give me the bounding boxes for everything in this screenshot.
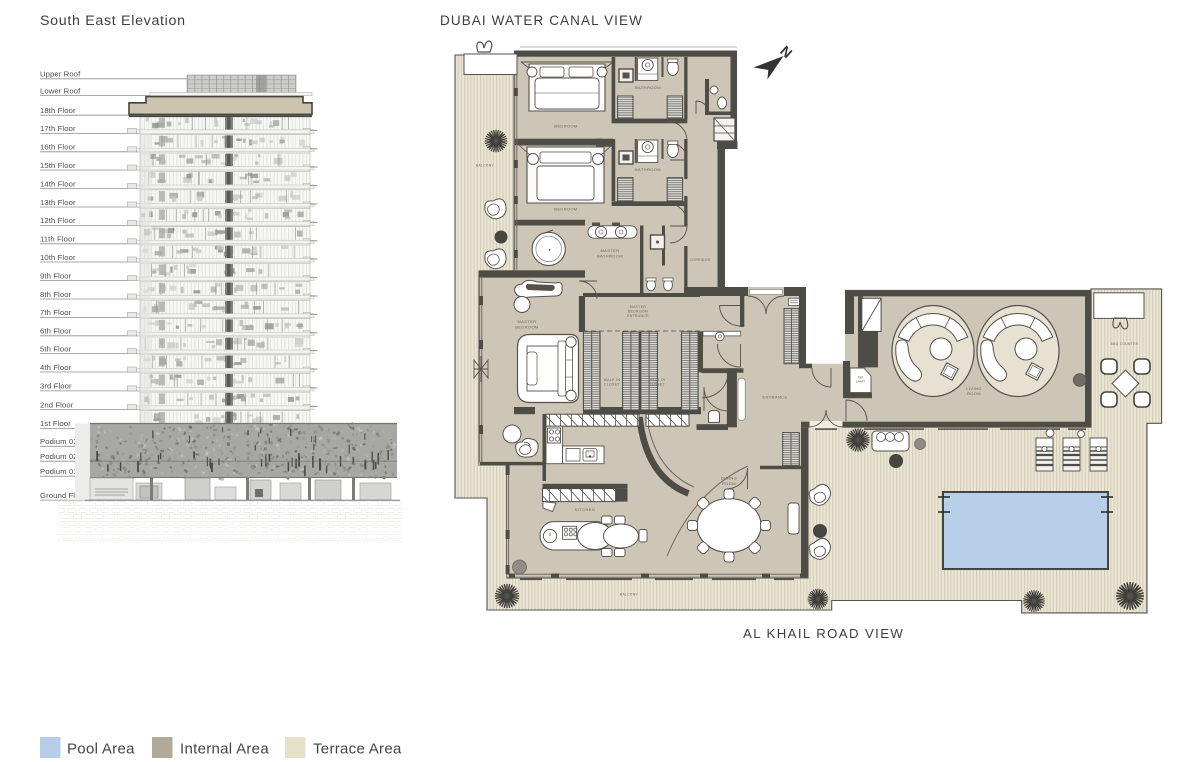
svg-text:CLOSET: CLOSET bbox=[604, 383, 620, 387]
svg-text:Podium 02: Podium 02 bbox=[40, 452, 78, 461]
svg-text:WALK IN: WALK IN bbox=[649, 378, 666, 382]
svg-text:Podium 01: Podium 01 bbox=[40, 467, 78, 476]
svg-text:BBQ COUNTER: BBQ COUNTER bbox=[1111, 342, 1139, 346]
svg-text:BALCONY: BALCONY bbox=[476, 164, 495, 168]
svg-text:7th Floor: 7th Floor bbox=[40, 308, 72, 317]
svg-text:CORRIDOR: CORRIDOR bbox=[690, 258, 711, 262]
svg-text:18th Floor: 18th Floor bbox=[40, 106, 76, 115]
svg-text:BATHROOM: BATHROOM bbox=[635, 167, 661, 172]
svg-text:BALCONY: BALCONY bbox=[620, 593, 639, 597]
svg-text:Terrace Area: Terrace Area bbox=[313, 741, 402, 758]
svg-text:Internal Area: Internal Area bbox=[180, 741, 269, 758]
svg-text:BEDROOM: BEDROOM bbox=[554, 124, 577, 129]
svg-text:2nd Floor: 2nd Floor bbox=[40, 400, 74, 409]
svg-text:11th Floor: 11th Floor bbox=[40, 235, 75, 244]
svg-text:ENTRANCE: ENTRANCE bbox=[627, 314, 649, 318]
svg-text:10th Floor: 10th Floor bbox=[40, 253, 76, 262]
svg-text:BATHROOM: BATHROOM bbox=[597, 254, 623, 259]
svg-text:South East Elevation: South East Elevation bbox=[40, 13, 186, 29]
svg-text:ROOM: ROOM bbox=[722, 481, 736, 486]
svg-text:Pool Area: Pool Area bbox=[67, 741, 135, 758]
svg-text:BEDROOM: BEDROOM bbox=[515, 325, 538, 330]
svg-text:ROOM: ROOM bbox=[967, 391, 981, 396]
svg-text:WALK IN: WALK IN bbox=[604, 378, 621, 382]
svg-text:Upper Roof: Upper Roof bbox=[40, 70, 81, 79]
svg-text:8th Floor: 8th Floor bbox=[40, 290, 72, 299]
svg-text:9th Floor: 9th Floor bbox=[40, 271, 72, 280]
svg-text:17th Floor: 17th Floor bbox=[40, 124, 76, 133]
svg-text:BATHROOM: BATHROOM bbox=[635, 85, 661, 90]
svg-text:14th Floor: 14th Floor bbox=[40, 179, 76, 188]
svg-text:4th Floor: 4th Floor bbox=[40, 363, 72, 372]
svg-text:SHAFT: SHAFT bbox=[856, 380, 865, 384]
svg-text:KITCHEN: KITCHEN bbox=[575, 507, 595, 512]
svg-text:6th Floor: 6th Floor bbox=[40, 327, 72, 336]
svg-text:MASTER: MASTER bbox=[600, 248, 619, 253]
svg-text:ENTRANCE: ENTRANCE bbox=[762, 395, 787, 400]
svg-text:MASTER: MASTER bbox=[630, 305, 647, 309]
svg-text:1st Floor: 1st Floor bbox=[40, 419, 71, 428]
svg-text:13th Floor: 13th Floor bbox=[40, 198, 76, 207]
svg-text:5th Floor: 5th Floor bbox=[40, 344, 72, 353]
svg-text:Lower Roof: Lower Roof bbox=[40, 86, 81, 95]
svg-text:AL KHAIL ROAD VIEW: AL KHAIL ROAD VIEW bbox=[743, 626, 904, 641]
svg-text:CLOSET: CLOSET bbox=[649, 383, 665, 387]
svg-text:BEDROOM: BEDROOM bbox=[554, 207, 577, 212]
svg-text:16th Floor: 16th Floor bbox=[40, 143, 76, 152]
svg-text:3rd Floor: 3rd Floor bbox=[40, 382, 72, 391]
svg-text:DINING: DINING bbox=[721, 476, 737, 481]
svg-text:MASTER: MASTER bbox=[517, 319, 536, 324]
svg-text:15th Floor: 15th Floor bbox=[40, 161, 76, 170]
svg-text:DUBAI WATER CANAL VIEW: DUBAI WATER CANAL VIEW bbox=[440, 13, 643, 28]
svg-text:Podium 03: Podium 03 bbox=[40, 437, 78, 446]
svg-text:12th Floor: 12th Floor bbox=[40, 216, 76, 225]
svg-text:BEDROOM: BEDROOM bbox=[628, 310, 648, 314]
